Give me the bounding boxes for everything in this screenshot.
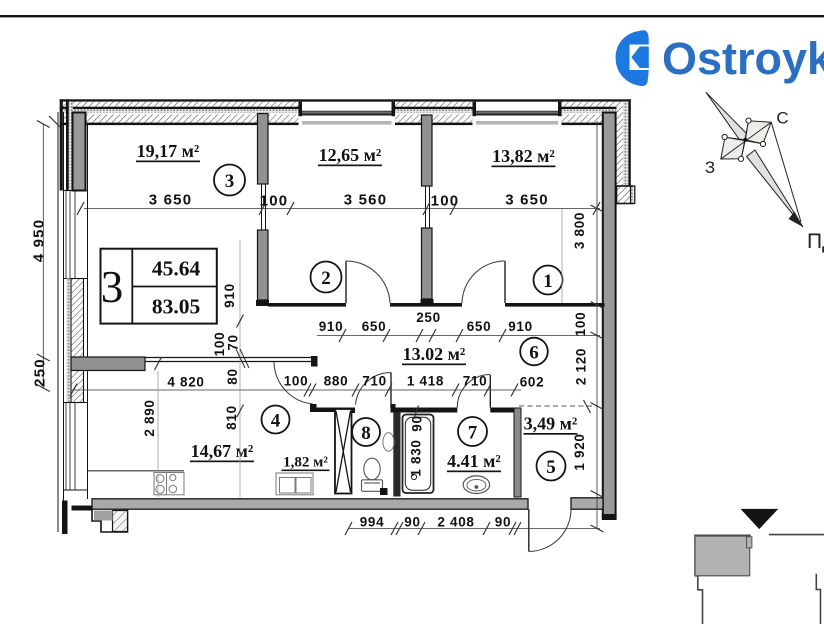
svg-text:710: 710 (463, 374, 488, 389)
svg-text:3 650: 3 650 (149, 192, 193, 209)
svg-text:4 950: 4 950 (31, 219, 48, 263)
svg-text:3: 3 (101, 262, 124, 312)
svg-text:83.05: 83.05 (152, 295, 200, 319)
svg-text:13.02 м²: 13.02 м² (403, 344, 466, 364)
svg-text:100: 100 (431, 193, 460, 210)
svg-text:3 560: 3 560 (344, 192, 388, 209)
svg-text:5: 5 (546, 457, 556, 478)
svg-text:250: 250 (32, 358, 49, 387)
svg-text:45.64: 45.64 (152, 257, 201, 281)
svg-text:1 830: 1 830 (409, 439, 424, 476)
svg-text:3 650: 3 650 (505, 192, 549, 209)
svg-text:З: З (705, 158, 715, 177)
svg-text:2 890: 2 890 (142, 399, 157, 436)
svg-text:100: 100 (573, 312, 588, 337)
svg-text:100: 100 (284, 374, 309, 389)
svg-text:12,65 м²: 12,65 м² (319, 145, 382, 165)
svg-text:ПД: ПД (807, 230, 824, 253)
svg-text:19,17 м²: 19,17 м² (137, 141, 200, 161)
svg-text:1 418: 1 418 (407, 374, 444, 389)
svg-text:4 820: 4 820 (167, 375, 204, 390)
svg-text:80: 80 (225, 368, 240, 384)
svg-text:910: 910 (319, 319, 344, 334)
svg-text:100: 100 (260, 193, 289, 210)
svg-text:90: 90 (495, 515, 511, 530)
svg-text:650: 650 (467, 319, 492, 334)
svg-text:4: 4 (271, 411, 281, 432)
svg-text:3 800: 3 800 (572, 212, 587, 249)
svg-text:1 920: 1 920 (572, 433, 587, 470)
svg-text:13,82 м²: 13,82 м² (492, 146, 555, 166)
svg-text:910: 910 (222, 283, 237, 308)
svg-text:1,82 м²: 1,82 м² (283, 455, 328, 471)
svg-text:3: 3 (225, 171, 235, 192)
svg-text:90: 90 (404, 515, 420, 530)
svg-text:3,49 м²: 3,49 м² (524, 414, 578, 434)
svg-text:910: 910 (508, 319, 533, 334)
svg-text:8: 8 (361, 423, 371, 444)
svg-text:7: 7 (468, 423, 478, 444)
svg-text:602: 602 (520, 375, 545, 390)
svg-text:6: 6 (529, 343, 539, 364)
svg-text:994: 994 (360, 515, 385, 530)
svg-text:70: 70 (226, 334, 241, 350)
svg-text:880: 880 (324, 374, 349, 389)
svg-text:Ostroyke: Ostroyke (662, 33, 824, 84)
svg-text:250: 250 (416, 310, 441, 325)
svg-text:14,67 м²: 14,67 м² (191, 441, 254, 461)
svg-text:650: 650 (362, 319, 387, 334)
svg-text:2: 2 (321, 268, 331, 289)
svg-text:С: С (776, 109, 788, 128)
svg-text:2 408: 2 408 (437, 515, 474, 530)
svg-text:710: 710 (362, 374, 387, 389)
svg-text:90: 90 (410, 415, 425, 431)
svg-text:1: 1 (543, 271, 553, 292)
svg-text:4.41 м²: 4.41 м² (447, 451, 501, 471)
svg-text:2 120: 2 120 (574, 348, 589, 385)
